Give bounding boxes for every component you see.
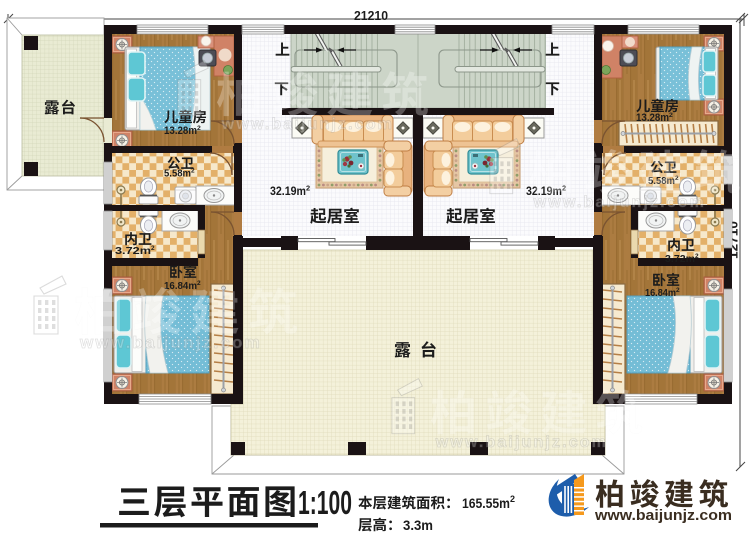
svg-text:2: 2 [695, 253, 699, 260]
svg-text:2: 2 [197, 125, 201, 132]
svg-text:3.72m: 3.72m [115, 245, 151, 257]
svg-text:www.baijunjz.com: www.baijunjz.com [79, 333, 262, 352]
svg-text:165.55m: 165.55m [462, 495, 510, 511]
svg-text:32.19m: 32.19m [270, 184, 306, 198]
svg-text:2: 2 [151, 245, 155, 252]
svg-text:21210: 21210 [354, 8, 388, 23]
svg-text:5.58m: 5.58m [164, 168, 191, 180]
svg-text:13.28m: 13.28m [164, 125, 197, 137]
svg-text:16.84m: 16.84m [164, 280, 197, 292]
svg-text:1:100: 1:100 [298, 484, 352, 521]
svg-text:www.baijunjz.com: www.baijunjz.com [533, 193, 707, 211]
svg-text:www.baijunjz.com: www.baijunjz.com [221, 115, 395, 133]
svg-text:2: 2 [676, 287, 680, 294]
svg-text:2: 2 [191, 168, 195, 175]
svg-text:16.84m: 16.84m [645, 287, 676, 299]
svg-text:2: 2 [510, 494, 515, 504]
svg-text:www.baijunjz.com: www.baijunjz.com [594, 508, 732, 524]
svg-text:www.baijunjz.com: www.baijunjz.com [435, 433, 608, 451]
svg-text:3.72m: 3.72m [665, 253, 695, 265]
svg-text:2: 2 [669, 112, 673, 119]
svg-text:2: 2 [306, 183, 310, 192]
svg-text:13.28m: 13.28m [636, 112, 669, 124]
svg-text:2: 2 [197, 280, 201, 287]
svg-text:3.3m: 3.3m [403, 517, 433, 533]
